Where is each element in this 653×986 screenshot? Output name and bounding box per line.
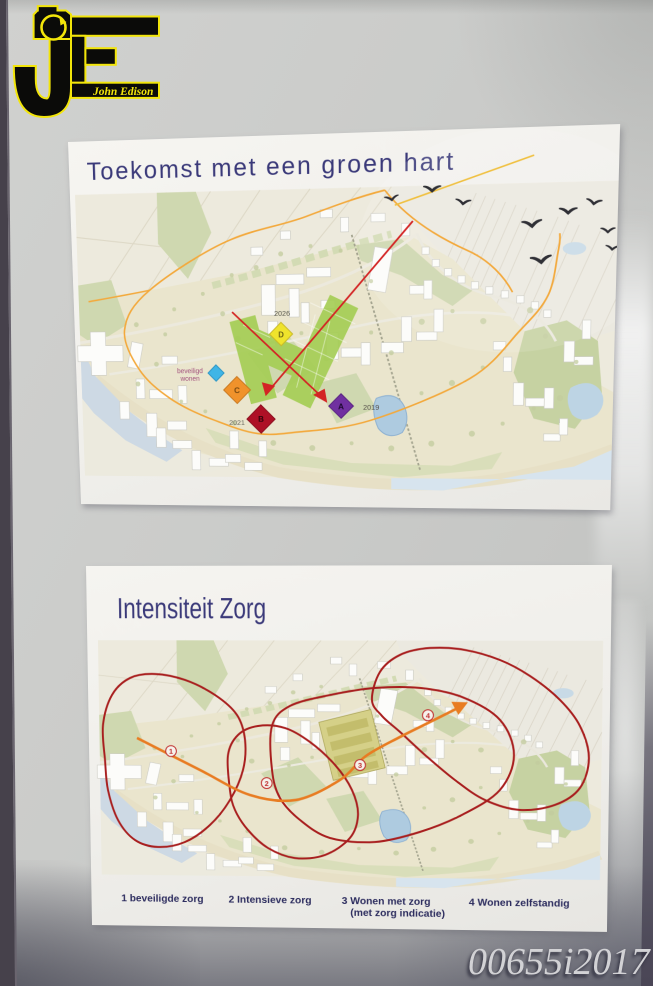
- svg-text:2026: 2026: [274, 309, 290, 318]
- svg-text:C: C: [234, 386, 240, 395]
- svg-text:2019: 2019: [363, 403, 379, 412]
- svg-text:beveiligd: beveiligd: [177, 368, 203, 375]
- svg-text:D: D: [278, 330, 284, 339]
- svg-text:John Edison: John Edison: [92, 86, 153, 98]
- svg-text:B: B: [258, 415, 264, 424]
- svg-text:1: 1: [169, 747, 173, 756]
- svg-text:wonen: wonen: [179, 376, 200, 383]
- svg-text:3: 3: [358, 761, 362, 770]
- svg-text:2021: 2021: [229, 418, 245, 427]
- svg-text:A: A: [338, 402, 344, 411]
- svg-text:2: 2: [265, 779, 269, 788]
